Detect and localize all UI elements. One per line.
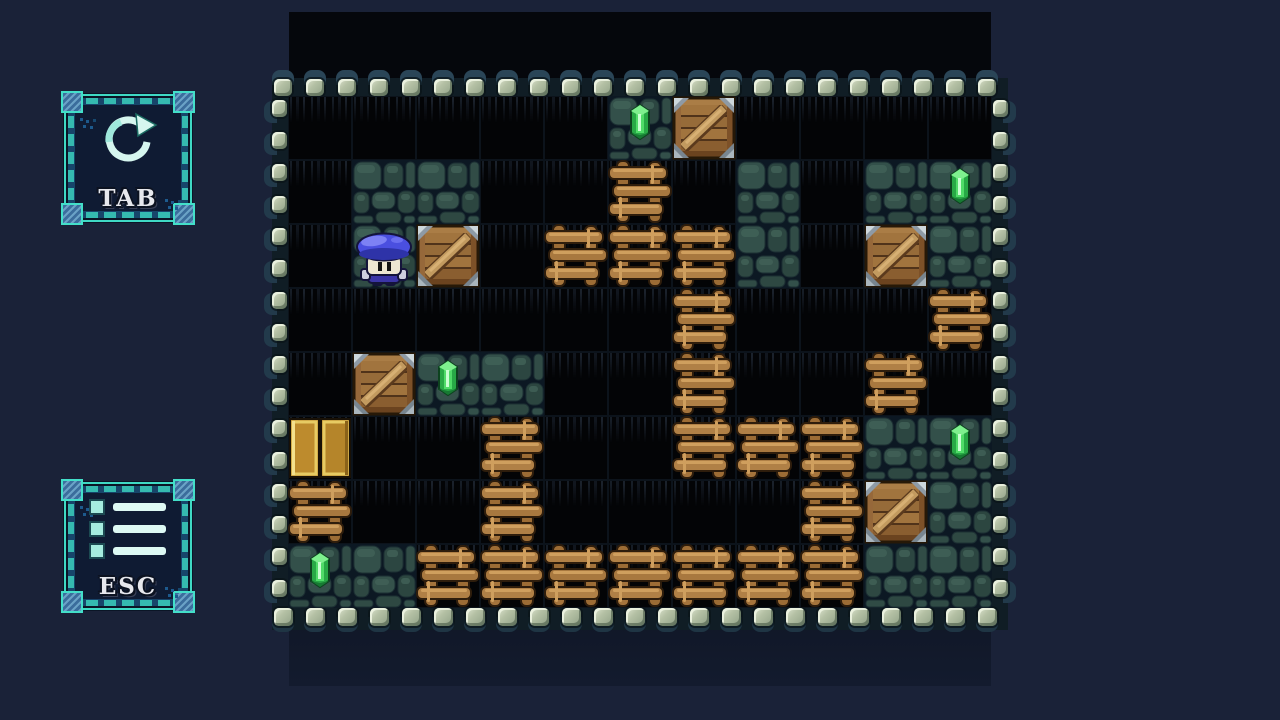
border-pebble bbox=[272, 324, 287, 341]
border-pebble bbox=[993, 484, 1008, 501]
cobble-floor-cell bbox=[928, 544, 992, 608]
border-pebble bbox=[993, 452, 1008, 469]
wood-barrier bbox=[608, 160, 672, 224]
empty-floor-cell bbox=[864, 96, 928, 160]
wood-barrier bbox=[480, 544, 544, 608]
border-pebble bbox=[530, 608, 549, 626]
border-pebble bbox=[272, 260, 287, 277]
crate bbox=[672, 96, 736, 160]
empty-floor-cell bbox=[480, 544, 544, 608]
border-pebble bbox=[754, 608, 773, 626]
border-pebble bbox=[272, 164, 287, 181]
border-pebble bbox=[498, 608, 517, 626]
restart-icon bbox=[97, 109, 159, 171]
menu-button[interactable]: ESC bbox=[64, 482, 192, 610]
border-pebble bbox=[272, 388, 287, 405]
cobble-floor-cell bbox=[480, 352, 544, 416]
wood-barrier bbox=[544, 224, 608, 288]
border-pebble bbox=[946, 608, 965, 626]
cobble-floor-cell bbox=[416, 160, 480, 224]
border-pebble bbox=[338, 79, 356, 96]
border-pebble bbox=[594, 79, 612, 96]
cobblestone-tile bbox=[928, 480, 992, 544]
border-pebble bbox=[993, 196, 1008, 213]
empty-floor-cell bbox=[608, 352, 672, 416]
empty-floor-cell bbox=[928, 96, 992, 160]
wood-barrier bbox=[608, 544, 672, 608]
empty-floor-cell bbox=[736, 416, 800, 480]
menu-icon bbox=[88, 497, 168, 563]
wood-barrier bbox=[608, 224, 672, 288]
cobble-floor-cell bbox=[608, 96, 672, 160]
frame-corner bbox=[173, 479, 195, 501]
cobble-floor-cell bbox=[352, 160, 416, 224]
empty-floor-cell bbox=[864, 352, 928, 416]
border-pebble bbox=[306, 79, 324, 96]
border-pebble bbox=[272, 420, 287, 437]
border-pebble bbox=[498, 79, 516, 96]
cobble-floor-cell bbox=[864, 544, 928, 608]
empty-floor-cell bbox=[544, 96, 608, 160]
gem bbox=[948, 424, 972, 461]
empty-floor-cell bbox=[672, 352, 736, 416]
border-pebble bbox=[306, 608, 325, 626]
empty-floor-cell bbox=[288, 288, 352, 352]
cobblestone-tile bbox=[928, 224, 992, 288]
empty-floor-cell bbox=[352, 480, 416, 544]
empty-floor-cell bbox=[608, 160, 672, 224]
border-pebble bbox=[658, 608, 677, 626]
frame-corner bbox=[61, 91, 83, 113]
border-pebble bbox=[272, 292, 287, 309]
empty-floor-cell bbox=[480, 160, 544, 224]
border-pebble bbox=[370, 608, 389, 626]
border-pebble bbox=[978, 608, 997, 626]
cobble-floor-cell bbox=[352, 544, 416, 608]
cobblestone-tile bbox=[864, 416, 928, 480]
border-pebble bbox=[530, 79, 548, 96]
border-pebble bbox=[850, 79, 868, 96]
empty-floor-cell bbox=[800, 288, 864, 352]
border-pebble bbox=[434, 608, 453, 626]
border-pebble bbox=[274, 608, 293, 626]
empty-floor-cell bbox=[288, 224, 352, 288]
border-pebble bbox=[882, 608, 901, 626]
empty-floor-cell bbox=[800, 96, 864, 160]
wood-barrier bbox=[800, 416, 864, 480]
border-pebble bbox=[402, 608, 421, 626]
wood-barrier bbox=[672, 544, 736, 608]
empty-floor-cell bbox=[352, 96, 416, 160]
border-pebble bbox=[850, 608, 869, 626]
border-pebble bbox=[993, 388, 1008, 405]
empty-floor-cell bbox=[480, 224, 544, 288]
empty-floor-cell bbox=[672, 224, 736, 288]
border-pebble bbox=[993, 420, 1008, 437]
crate bbox=[864, 480, 928, 544]
wood-barrier bbox=[800, 544, 864, 608]
border-pebble bbox=[272, 452, 287, 469]
gem bbox=[308, 552, 332, 589]
frame-corner bbox=[61, 479, 83, 501]
empty-floor-cell bbox=[736, 288, 800, 352]
border-pebble bbox=[993, 516, 1008, 533]
empty-floor-cell bbox=[352, 288, 416, 352]
border-pebble bbox=[434, 79, 452, 96]
empty-floor-cell bbox=[800, 224, 864, 288]
cobble-floor-cell bbox=[864, 224, 928, 288]
empty-floor-cell bbox=[288, 352, 352, 416]
border-pebble bbox=[272, 516, 287, 533]
border-pebble bbox=[466, 608, 485, 626]
border-pebble bbox=[993, 548, 1008, 565]
cobble-floor-cell bbox=[928, 416, 992, 480]
border-pebble bbox=[272, 484, 287, 501]
empty-floor-cell bbox=[864, 288, 928, 352]
empty-floor-cell bbox=[544, 480, 608, 544]
wood-barrier bbox=[928, 288, 992, 352]
empty-floor-cell bbox=[608, 544, 672, 608]
empty-floor-cell bbox=[544, 416, 608, 480]
border-pebble bbox=[274, 79, 292, 96]
empty-floor-cell bbox=[352, 352, 416, 416]
empty-floor-cell bbox=[480, 288, 544, 352]
border-pebble bbox=[914, 608, 933, 626]
empty-floor-cell bbox=[800, 352, 864, 416]
gem bbox=[948, 168, 972, 205]
wood-barrier bbox=[736, 544, 800, 608]
border-pebble bbox=[993, 164, 1008, 181]
rune-decoration bbox=[80, 506, 83, 509]
cobble-floor-cell bbox=[736, 160, 800, 224]
cobble-floor-cell bbox=[288, 544, 352, 608]
cobble-floor-cell bbox=[864, 416, 928, 480]
cobblestone-tile bbox=[736, 224, 800, 288]
empty-floor-cell bbox=[608, 480, 672, 544]
border-pebble bbox=[993, 580, 1008, 597]
empty-floor-cell bbox=[608, 224, 672, 288]
empty-floor-cell bbox=[672, 160, 736, 224]
empty-floor-cell bbox=[608, 416, 672, 480]
wood-barrier bbox=[672, 352, 736, 416]
border-pebble bbox=[562, 608, 581, 626]
cobblestone-tile bbox=[864, 544, 928, 608]
wood-barrier bbox=[416, 544, 480, 608]
border-pebble bbox=[882, 79, 900, 96]
border-pebble bbox=[993, 132, 1008, 149]
restart-button-label: TAB bbox=[66, 185, 190, 212]
empty-floor-cell bbox=[544, 160, 608, 224]
empty-floor-cell bbox=[288, 160, 352, 224]
border-pebble bbox=[466, 79, 484, 96]
empty-floor-cell bbox=[672, 288, 736, 352]
cobble-floor-cell bbox=[416, 352, 480, 416]
empty-floor-cell bbox=[416, 416, 480, 480]
empty-floor-cell bbox=[544, 224, 608, 288]
border-pebble bbox=[272, 100, 287, 117]
cobble-floor-cell bbox=[928, 224, 992, 288]
empty-floor-cell bbox=[928, 352, 992, 416]
crate bbox=[352, 352, 416, 416]
wood-barrier bbox=[736, 416, 800, 480]
empty-floor-cell bbox=[736, 544, 800, 608]
empty-floor-cell bbox=[672, 96, 736, 160]
empty-floor-cell bbox=[480, 96, 544, 160]
game-board bbox=[288, 96, 992, 608]
empty-floor-cell bbox=[352, 416, 416, 480]
cobble-floor-cell bbox=[864, 480, 928, 544]
border-pebble bbox=[690, 79, 708, 96]
cobblestone-tile bbox=[864, 160, 928, 224]
border-pebble bbox=[946, 79, 964, 96]
empty-floor-cell bbox=[736, 352, 800, 416]
border-pebble bbox=[754, 79, 772, 96]
empty-floor-cell bbox=[544, 352, 608, 416]
wood-barrier bbox=[288, 480, 352, 544]
menu-button-label: ESC bbox=[66, 573, 190, 600]
empty-floor-cell bbox=[480, 480, 544, 544]
empty-floor-cell bbox=[544, 288, 608, 352]
empty-floor-cell bbox=[480, 416, 544, 480]
exit-door bbox=[288, 416, 352, 480]
gem bbox=[628, 104, 652, 141]
cobble-floor-cell bbox=[864, 160, 928, 224]
border-pebble bbox=[978, 79, 996, 96]
border-pebble bbox=[370, 79, 388, 96]
player-character bbox=[352, 224, 416, 288]
empty-floor-cell bbox=[800, 416, 864, 480]
crate bbox=[864, 224, 928, 288]
wood-barrier bbox=[672, 288, 736, 352]
cobble-floor-cell bbox=[928, 160, 992, 224]
border-pebble bbox=[594, 608, 613, 626]
empty-floor-cell bbox=[800, 544, 864, 608]
border-pebble bbox=[914, 79, 932, 96]
border-pebble bbox=[272, 196, 287, 213]
border-pebble bbox=[993, 228, 1008, 245]
wood-barrier bbox=[480, 480, 544, 544]
border-pebble bbox=[272, 228, 287, 245]
empty-floor-cell bbox=[672, 480, 736, 544]
border-pebble bbox=[562, 79, 580, 96]
border-pebble bbox=[338, 608, 357, 626]
border-pebble bbox=[272, 580, 287, 597]
empty-floor-cell bbox=[608, 288, 672, 352]
crate bbox=[416, 224, 480, 288]
empty-floor-cell bbox=[288, 480, 352, 544]
empty-floor-cell bbox=[416, 480, 480, 544]
cobblestone-tile bbox=[736, 160, 800, 224]
empty-floor-cell bbox=[416, 288, 480, 352]
empty-floor-cell bbox=[800, 480, 864, 544]
border-pebble bbox=[658, 79, 676, 96]
empty-floor-cell bbox=[672, 416, 736, 480]
border-pebble bbox=[272, 548, 287, 565]
empty-floor-cell bbox=[416, 96, 480, 160]
cobblestone-tile bbox=[352, 160, 416, 224]
cobblestone-tile bbox=[416, 160, 480, 224]
empty-floor-cell bbox=[736, 96, 800, 160]
border-pebble bbox=[402, 79, 420, 96]
restart-button[interactable]: TAB bbox=[64, 94, 192, 222]
rune-decoration bbox=[80, 118, 83, 121]
wood-barrier bbox=[800, 480, 864, 544]
wood-barrier bbox=[672, 224, 736, 288]
border-pebble bbox=[690, 608, 709, 626]
empty-floor-cell bbox=[736, 480, 800, 544]
empty-floor-cell bbox=[928, 288, 992, 352]
border-pebble bbox=[993, 100, 1008, 117]
cobble-floor-cell bbox=[928, 480, 992, 544]
empty-floor-cell bbox=[288, 96, 352, 160]
border-pebble bbox=[818, 79, 836, 96]
wood-barrier bbox=[544, 544, 608, 608]
border-pebble bbox=[993, 292, 1008, 309]
wood-barrier bbox=[864, 352, 928, 416]
border-pebble bbox=[272, 132, 287, 149]
cobblestone-tile bbox=[352, 544, 416, 608]
cobblestone-tile bbox=[480, 352, 544, 416]
empty-floor-cell bbox=[800, 160, 864, 224]
gem bbox=[436, 360, 460, 397]
wood-barrier bbox=[672, 416, 736, 480]
wood-barrier bbox=[480, 416, 544, 480]
empty-floor-cell bbox=[416, 224, 480, 288]
empty-floor-cell bbox=[416, 544, 480, 608]
cobble-floor-cell bbox=[736, 224, 800, 288]
border-pebble bbox=[626, 608, 645, 626]
border-pebble bbox=[786, 79, 804, 96]
frame-corner bbox=[173, 91, 195, 113]
border-pebble bbox=[993, 356, 1008, 373]
border-pebble bbox=[626, 79, 644, 96]
cobblestone-tile bbox=[928, 544, 992, 608]
border-pebble bbox=[786, 608, 805, 626]
empty-floor-cell bbox=[288, 416, 352, 480]
border-pebble bbox=[993, 324, 1008, 341]
empty-floor-cell bbox=[544, 544, 608, 608]
border-pebble bbox=[272, 356, 287, 373]
border-pebble bbox=[993, 260, 1008, 277]
border-pebble bbox=[722, 79, 740, 96]
border-pebble bbox=[818, 608, 837, 626]
empty-floor-cell bbox=[672, 544, 736, 608]
cobble-floor-cell bbox=[352, 224, 416, 288]
border-pebble bbox=[722, 608, 741, 626]
